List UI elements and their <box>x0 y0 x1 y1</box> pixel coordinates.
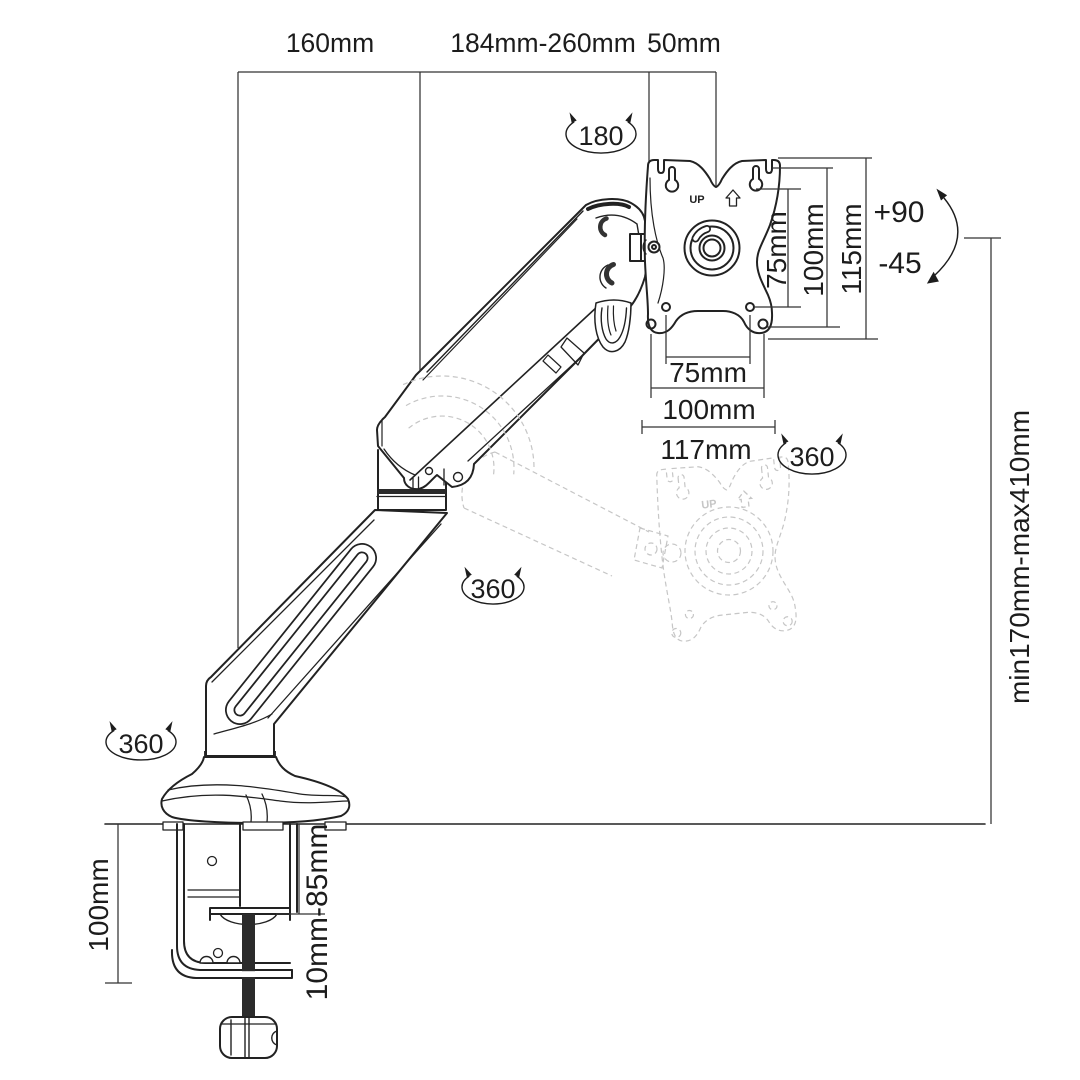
svg-text:-45: -45 <box>878 247 921 280</box>
svg-text:100mm: 100mm <box>662 394 755 425</box>
svg-text:min170mm-max410mm: min170mm-max410mm <box>1004 410 1035 704</box>
svg-text:117mm: 117mm <box>660 434 751 465</box>
svg-text:360: 360 <box>789 442 834 472</box>
svg-text:184mm-260mm: 184mm-260mm <box>450 28 636 58</box>
svg-text:160mm: 160mm <box>286 28 374 58</box>
svg-text:75mm: 75mm <box>669 357 747 388</box>
svg-text:10mm-85mm: 10mm-85mm <box>301 824 334 1001</box>
svg-text:115mm: 115mm <box>836 203 867 294</box>
svg-text:75mm: 75mm <box>761 211 792 289</box>
svg-text:+90: +90 <box>874 196 925 229</box>
svg-text:180: 180 <box>578 121 623 151</box>
svg-text:360: 360 <box>470 574 515 604</box>
svg-text:50mm: 50mm <box>647 28 721 58</box>
svg-text:100mm: 100mm <box>83 858 114 951</box>
svg-text:360: 360 <box>118 729 163 759</box>
svg-text:100mm: 100mm <box>798 203 829 296</box>
